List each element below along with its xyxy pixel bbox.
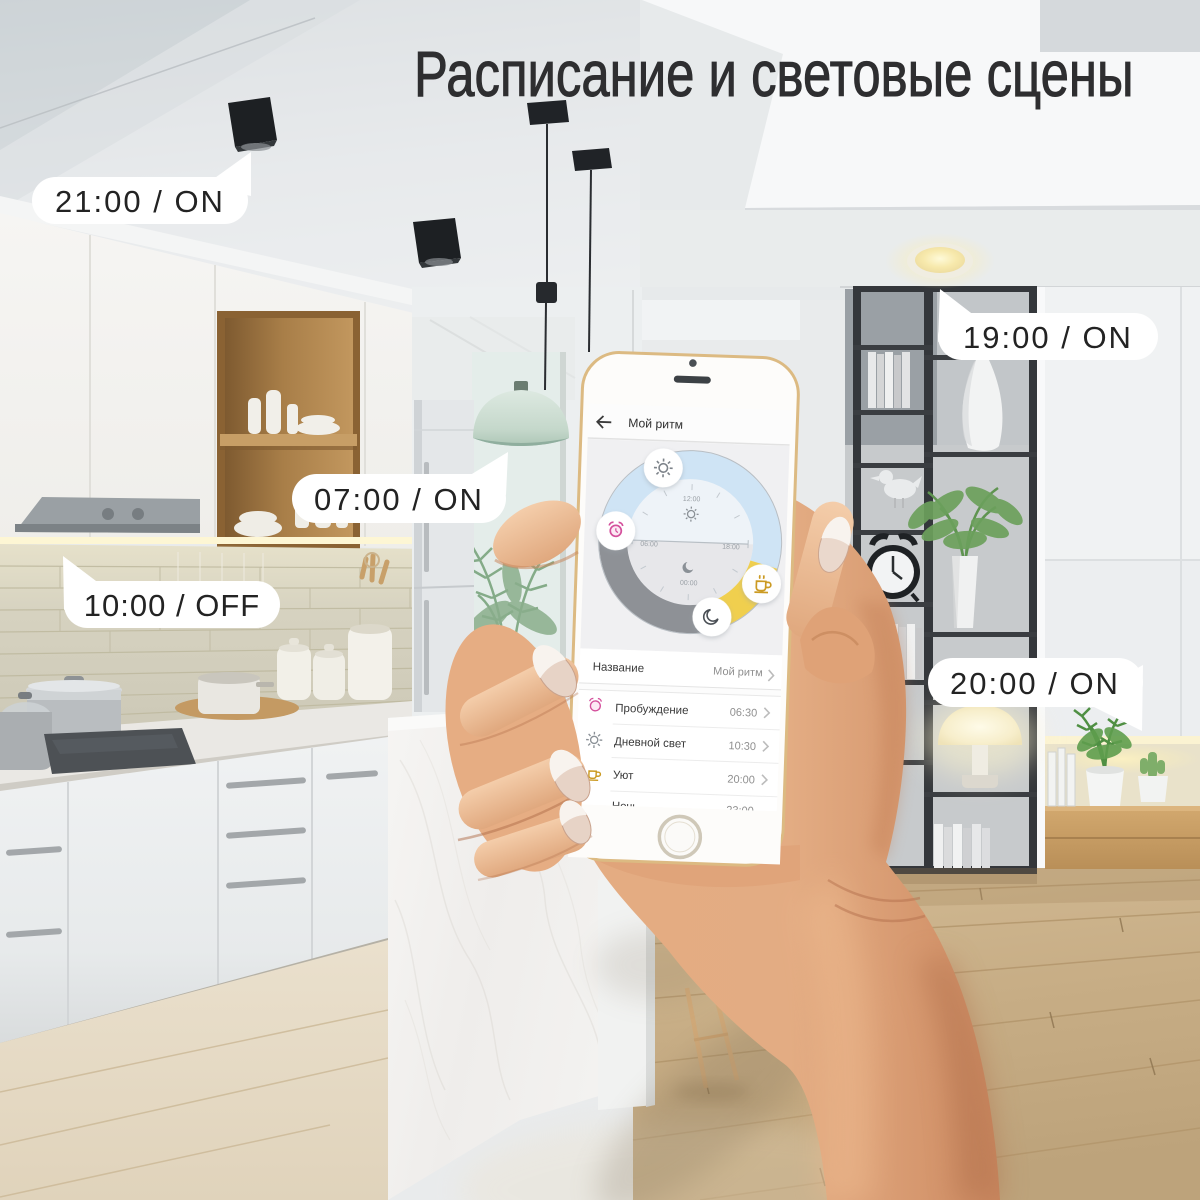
svg-text:20:00: 20:00 bbox=[727, 774, 755, 787]
svg-text:Дневной свет: Дневной свет bbox=[614, 736, 687, 751]
svg-text:Уют: Уют bbox=[613, 770, 635, 783]
svg-text:06:00: 06:00 bbox=[640, 541, 658, 549]
svg-text:Мой ритм: Мой ритм bbox=[713, 666, 763, 680]
svg-text:Расписание и световые сцены: Расписание и световые сцены bbox=[414, 40, 1134, 111]
svg-text:Название: Название bbox=[592, 661, 644, 675]
svg-text:Мой ритм: Мой ритм bbox=[628, 416, 683, 432]
svg-text:20:00 / ON: 20:00 / ON bbox=[950, 666, 1120, 701]
svg-text:18:00: 18:00 bbox=[722, 544, 740, 552]
svg-text:00:00: 00:00 bbox=[680, 580, 698, 588]
svg-text:10:30: 10:30 bbox=[728, 740, 756, 753]
svg-text:21:00 / ON: 21:00 / ON bbox=[55, 184, 225, 219]
svg-text:07:00 / ON: 07:00 / ON bbox=[314, 482, 484, 517]
svg-text:10:00 / OFF: 10:00 / OFF bbox=[84, 588, 260, 623]
svg-text:06:30: 06:30 bbox=[729, 707, 757, 720]
svg-text:19:00 / ON: 19:00 / ON bbox=[963, 320, 1133, 355]
svg-text:12:00: 12:00 bbox=[683, 496, 701, 504]
svg-text:Пробуждение: Пробуждение bbox=[615, 703, 689, 718]
